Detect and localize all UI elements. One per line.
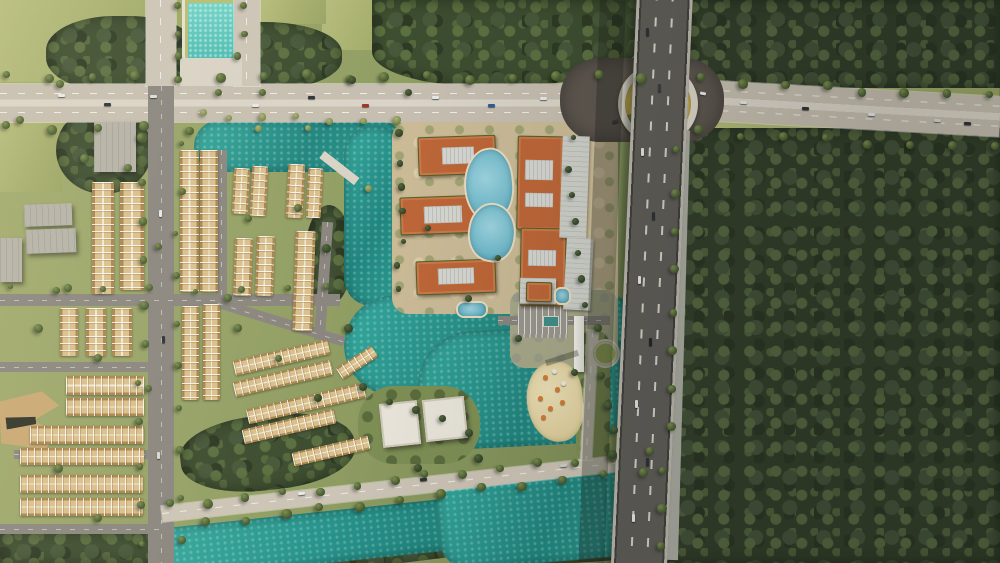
tree (694, 125, 703, 134)
apartment-block (516, 136, 564, 231)
tree (359, 383, 367, 391)
forest-top-right (686, 0, 1000, 88)
street-h2 (0, 362, 152, 372)
townhouse-row (180, 150, 199, 292)
tree (137, 463, 143, 469)
car (740, 101, 747, 104)
tree (458, 470, 467, 479)
canal-end-plaza (180, 58, 242, 86)
beach-umbrella (555, 387, 560, 392)
tree (670, 265, 679, 274)
tree (216, 73, 226, 83)
beach-umbrella (560, 400, 565, 405)
tree (595, 70, 604, 79)
car (646, 28, 649, 36)
townhouse-row (86, 308, 106, 356)
tree (495, 255, 501, 261)
tree (673, 146, 680, 153)
tree (174, 2, 181, 9)
tree (405, 89, 412, 96)
townhouse-row (66, 398, 144, 416)
tree (56, 80, 64, 88)
tree (142, 340, 150, 348)
tree (80, 154, 89, 163)
tree (294, 204, 302, 212)
tree (259, 89, 266, 96)
tree (425, 225, 431, 231)
tree (571, 459, 579, 467)
car (157, 452, 160, 459)
tree (365, 185, 372, 192)
tree (323, 283, 330, 290)
tree (986, 91, 993, 98)
townhouse-row (60, 308, 78, 356)
tree (414, 464, 422, 472)
tree (322, 244, 331, 253)
car (488, 104, 495, 107)
vertical-avenue (148, 86, 174, 563)
tree (173, 272, 180, 279)
townhouse-row (20, 448, 144, 465)
tree (779, 132, 788, 141)
tree (255, 125, 262, 132)
tree (179, 141, 184, 146)
beach-umbrella (543, 375, 548, 380)
tree (906, 141, 914, 149)
tree (572, 218, 579, 225)
apartment-roof-deck (442, 146, 475, 164)
main-avenue (0, 84, 650, 122)
tree (858, 88, 866, 96)
tree (781, 81, 789, 89)
tree (137, 133, 146, 142)
tree (608, 450, 617, 459)
tree (302, 69, 312, 79)
apartment-roof-deck (438, 267, 475, 284)
entry-tower (574, 316, 584, 372)
tree (439, 415, 446, 422)
tree (139, 217, 148, 226)
car (934, 119, 941, 122)
tree (670, 309, 677, 316)
tree (140, 301, 149, 310)
tree (215, 89, 222, 96)
clubhouse-h-roof (526, 282, 552, 302)
tree (174, 362, 181, 369)
townhouse-row (232, 168, 250, 215)
tree (140, 256, 147, 263)
tree (259, 113, 266, 120)
school-building (26, 228, 77, 254)
tree (360, 118, 366, 124)
townhouse-row (292, 231, 315, 332)
tree (137, 501, 145, 509)
tree (355, 502, 365, 512)
townhouse-row (200, 150, 218, 292)
school-building (0, 238, 22, 282)
tree (178, 536, 186, 544)
tree (348, 76, 356, 84)
townhouse-row (182, 306, 199, 400)
tree (94, 354, 102, 362)
tree (397, 160, 403, 166)
townhouse-row (255, 236, 275, 297)
townhouse-row (30, 426, 144, 444)
tree (671, 228, 678, 235)
tree (64, 284, 72, 292)
beach-umbrella (538, 396, 543, 401)
tree (155, 243, 162, 250)
car (162, 336, 165, 343)
tree (667, 422, 676, 431)
townhouse-row (120, 182, 144, 290)
tree (646, 447, 654, 455)
forest-right-main (664, 128, 1000, 563)
tree (558, 476, 567, 485)
tree (569, 192, 575, 198)
tree (611, 426, 618, 433)
tree (315, 503, 323, 511)
tree (260, 72, 268, 80)
car (635, 400, 638, 408)
tree (344, 324, 353, 333)
tree (203, 499, 213, 509)
tree (314, 394, 322, 402)
beach-umbrella (552, 369, 557, 374)
tree (234, 324, 242, 332)
tree (668, 385, 676, 393)
tree (200, 109, 207, 116)
car (104, 103, 111, 106)
tree (145, 385, 152, 392)
car (159, 210, 162, 217)
tree (54, 464, 63, 473)
car (646, 458, 649, 466)
beach-umbrella (548, 406, 553, 411)
tree (738, 79, 748, 89)
tree (379, 72, 389, 82)
tree (138, 179, 145, 186)
tree (174, 321, 180, 327)
gate-pool (556, 289, 569, 303)
townhouse-row (20, 498, 143, 516)
apartment-roof-deck (424, 205, 463, 223)
tree (100, 286, 105, 291)
car (638, 276, 641, 284)
tree (175, 31, 181, 37)
sports-court (543, 316, 559, 327)
tree (175, 52, 182, 59)
tree (477, 483, 485, 491)
tree (823, 81, 833, 91)
tree (474, 454, 483, 463)
car (308, 96, 315, 99)
canal-top (185, 0, 241, 66)
tree (185, 127, 193, 135)
beach-umbrella (541, 415, 546, 420)
tree (94, 124, 102, 132)
street-h4 (0, 524, 162, 534)
townhouse-row (250, 166, 269, 217)
tree (600, 470, 607, 477)
townhouse-row (306, 168, 324, 219)
tree (47, 125, 56, 134)
apartment-roof-deck (525, 160, 553, 180)
beach-umbrella (561, 381, 566, 386)
tree (991, 142, 999, 150)
tree (305, 125, 311, 131)
tree (671, 189, 680, 198)
tree (146, 284, 153, 291)
tree (943, 89, 952, 98)
tree (242, 517, 250, 525)
tree (465, 295, 472, 302)
school-building (24, 203, 73, 227)
tree (657, 504, 666, 513)
tree (275, 355, 282, 362)
car (58, 94, 65, 97)
car (362, 104, 369, 107)
townhouse-row (66, 376, 144, 395)
tree (396, 286, 401, 291)
tree (436, 489, 446, 499)
tree (316, 488, 325, 497)
tree (16, 116, 24, 124)
lawn-top-strip (260, 0, 326, 24)
tree (178, 495, 184, 501)
tree (176, 405, 182, 411)
tree (285, 285, 291, 291)
aerial-masterplan-render (0, 0, 1000, 563)
car (964, 122, 971, 125)
car (432, 96, 439, 99)
tree (135, 418, 143, 426)
tree (245, 215, 252, 222)
townhouse-row (112, 308, 132, 356)
tree (639, 468, 648, 477)
tree (393, 116, 401, 124)
car (540, 97, 547, 100)
tree (124, 164, 132, 172)
tree (174, 76, 181, 83)
tree (34, 324, 43, 333)
tree (176, 446, 184, 454)
tree (89, 73, 96, 80)
tree (465, 429, 473, 437)
tree (395, 129, 403, 137)
tree (173, 231, 179, 237)
south-pool (458, 303, 486, 316)
townhouse-row (203, 304, 220, 400)
apartment-roof-deck (525, 193, 553, 207)
car (649, 338, 652, 346)
car (658, 84, 661, 92)
street-h1 (0, 294, 340, 306)
tree (139, 121, 149, 131)
tree (282, 509, 291, 518)
car (868, 113, 875, 116)
tree (515, 335, 522, 342)
tree (3, 71, 10, 78)
townhouse-row (20, 475, 143, 493)
townhouse-row (92, 182, 114, 294)
tree (394, 262, 401, 269)
car (150, 95, 157, 98)
tree (234, 52, 242, 60)
tree (224, 294, 232, 302)
tree (8, 284, 13, 289)
tree (386, 399, 393, 406)
tree (571, 369, 578, 376)
car (802, 107, 809, 110)
car (252, 104, 259, 107)
tree (94, 514, 102, 522)
car (641, 148, 644, 156)
tree (391, 476, 400, 485)
tree (594, 324, 602, 332)
car (632, 514, 635, 522)
north-road-west-of-canal (146, 0, 176, 86)
tree (241, 31, 248, 38)
apartment-roof-deck (528, 250, 556, 266)
tree (226, 115, 232, 121)
tree (496, 465, 504, 473)
tree (130, 71, 139, 80)
car (652, 212, 655, 220)
